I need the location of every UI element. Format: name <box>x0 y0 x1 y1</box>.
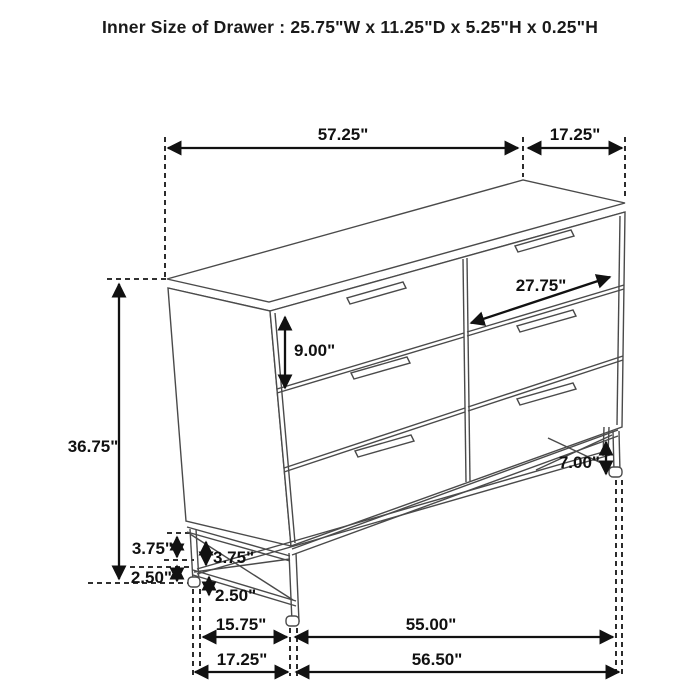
dresser-dimension-drawing: 57.25" 17.25" 36.75" 9.00" 27.75" 7.00" … <box>0 0 700 700</box>
dim-label-base-floor-inner: 2.50" <box>215 586 256 605</box>
dim-label-top-depth: 17.25" <box>550 125 601 144</box>
dim-label-top-width: 57.25" <box>318 125 369 144</box>
leg-foot <box>609 467 622 477</box>
dim-label-base-gap-outer: 3.75" <box>132 539 173 558</box>
dim-label-leg-height: 7.00" <box>559 453 600 472</box>
dim-label-bottom-outer-width: 56.50" <box>412 650 463 669</box>
dim-label-base-floor-outer: 2.50" <box>131 568 172 587</box>
dimension-diagram-page: Inner Size of Drawer : 25.75"W x 11.25"D… <box>0 0 700 700</box>
dresser-cabinet <box>167 180 625 546</box>
dim-label-drawer-width: 27.75" <box>516 276 567 295</box>
dim-label-drawer-height: 9.00" <box>294 341 335 360</box>
dim-label-bottom-inner-width: 55.00" <box>406 615 457 634</box>
dim-label-bottom-outer-depth: 17.25" <box>217 650 268 669</box>
dim-label-bottom-inner-depth: 15.75" <box>216 615 267 634</box>
leg-foot <box>188 577 200 587</box>
dim-label-base-gap-inner: 3.75" <box>213 548 254 567</box>
diagram-title: Inner Size of Drawer : 25.75"W x 11.25"D… <box>0 17 700 38</box>
leg-foot <box>286 616 299 626</box>
dim-label-overall-height: 36.75" <box>68 437 119 456</box>
